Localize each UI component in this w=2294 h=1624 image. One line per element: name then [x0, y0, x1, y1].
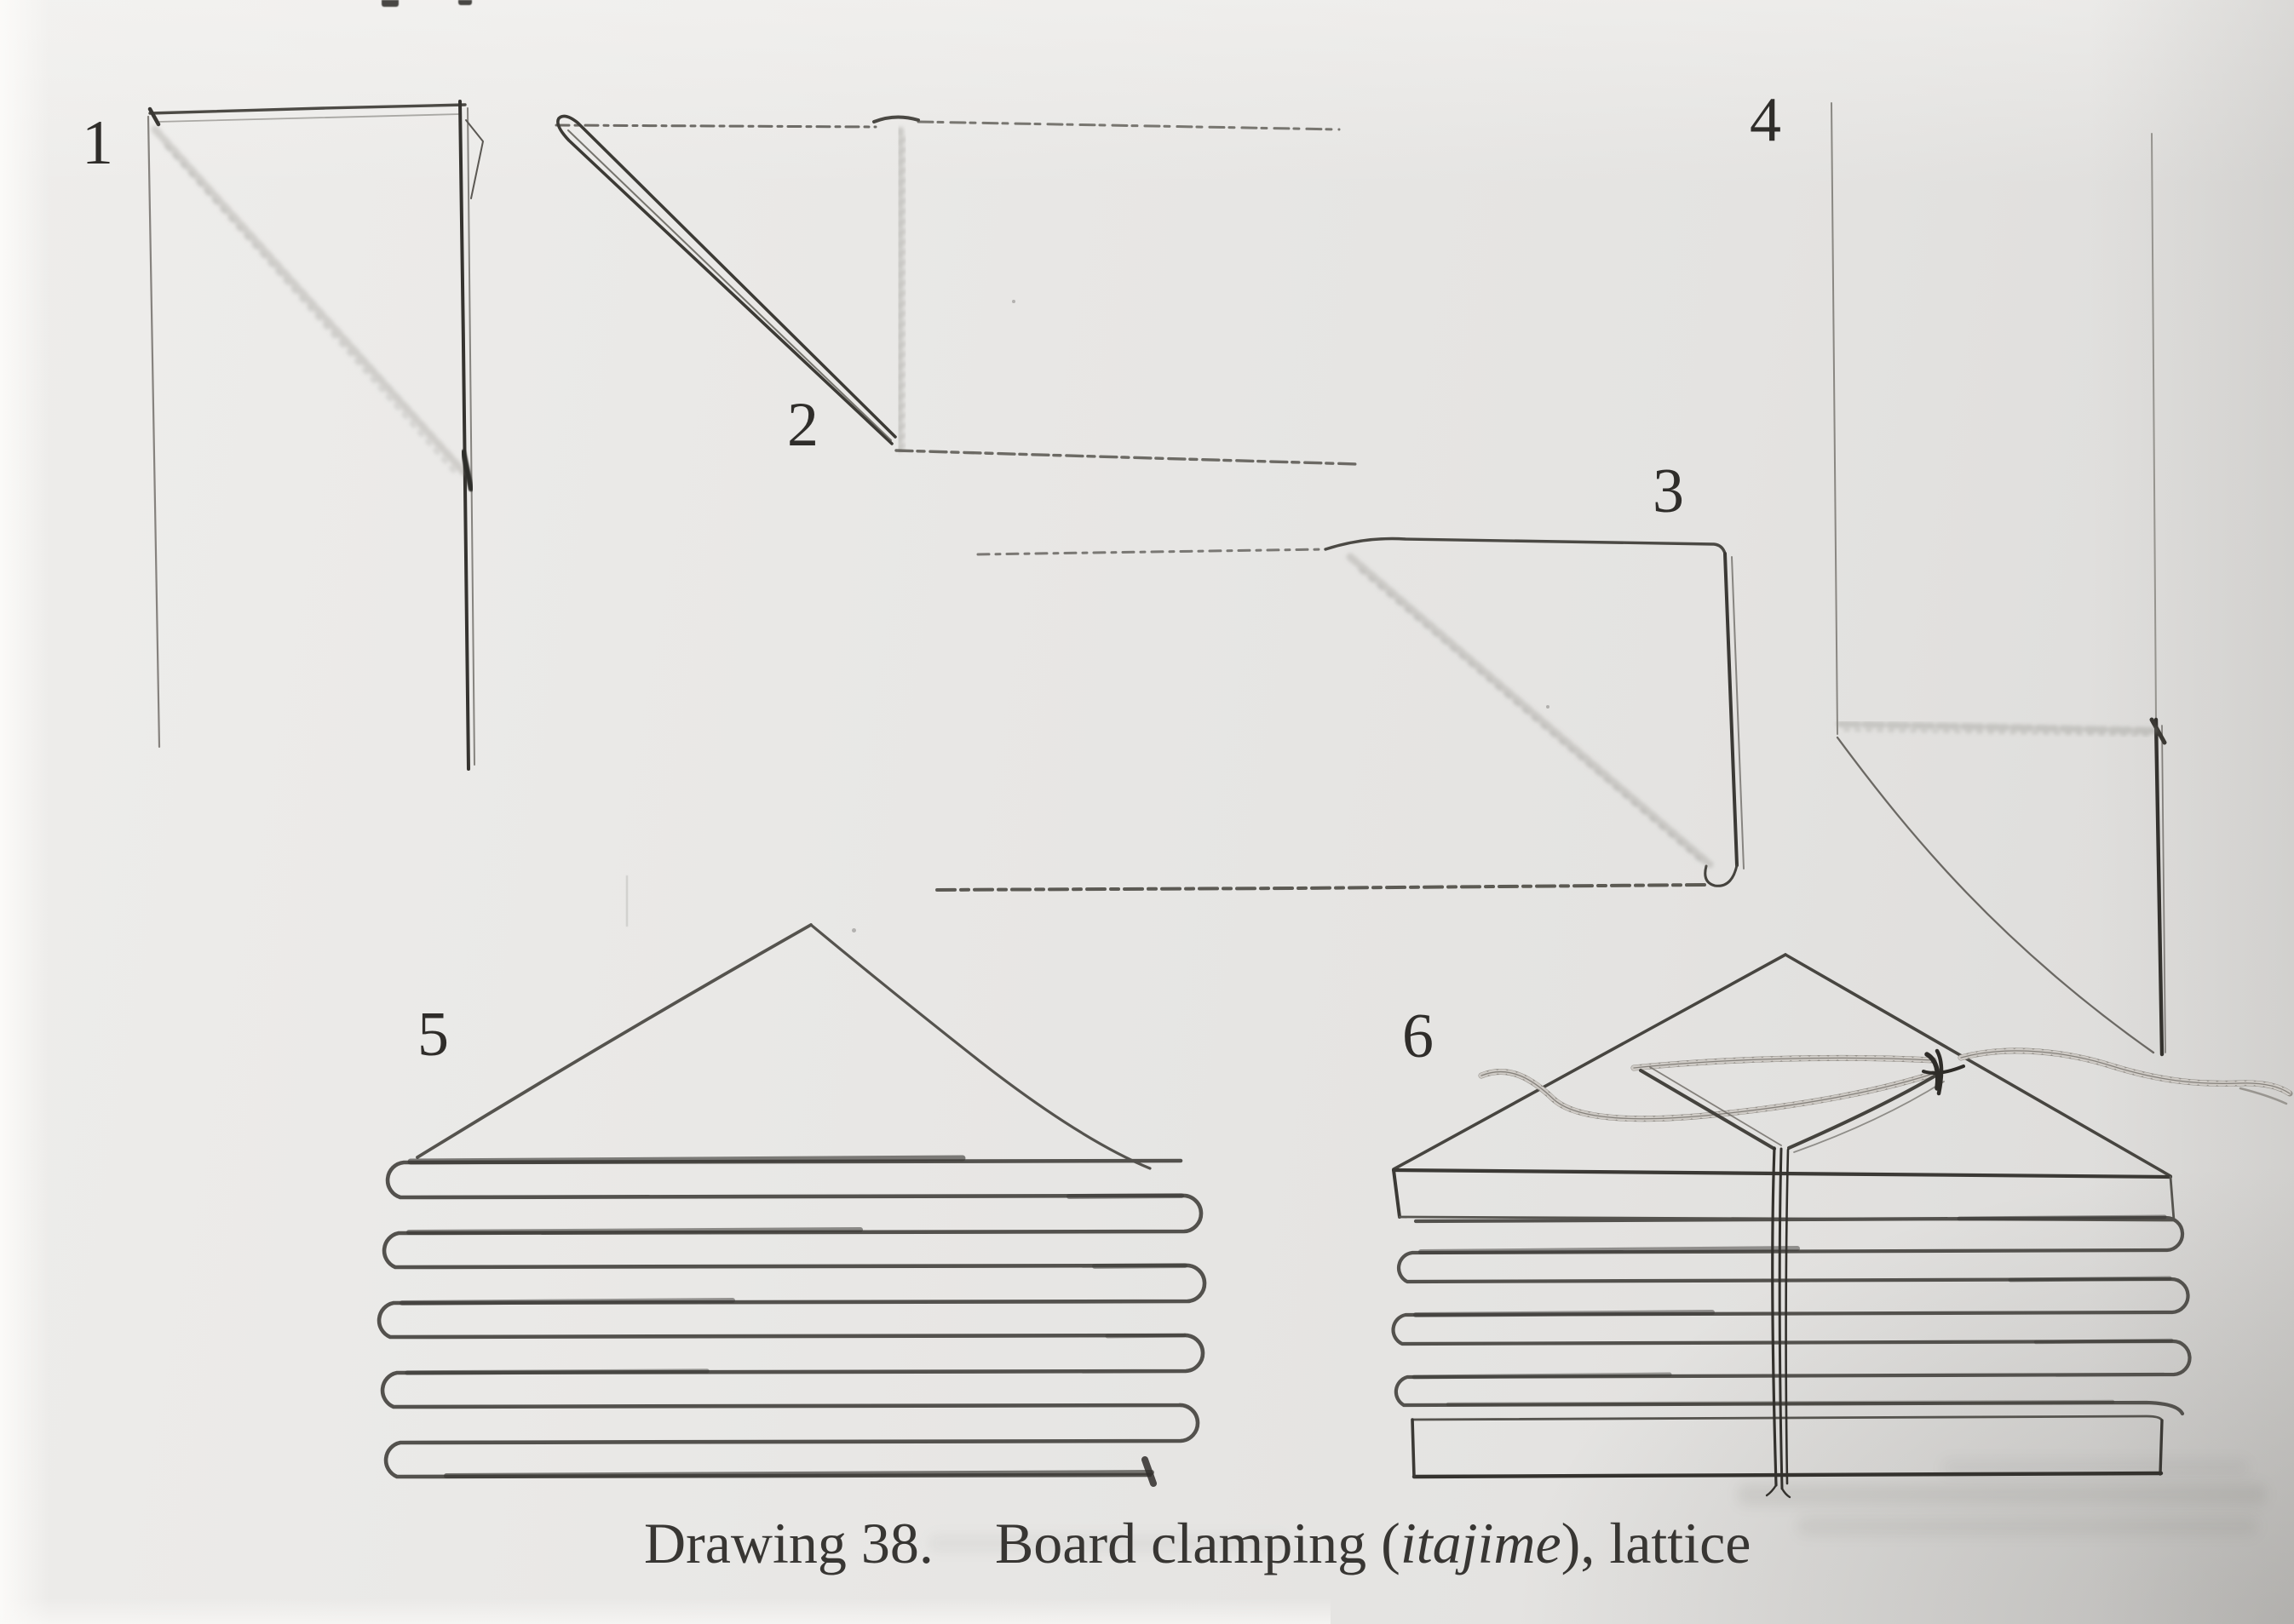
figure-2-label: 2: [787, 393, 819, 456]
figure-3-sketch-horizontal-strip: [932, 539, 1744, 891]
figure-5-sketch-pleated-stack: [379, 925, 1204, 1483]
cord-knot: [1923, 1051, 1963, 1093]
top-clamp-board: [1394, 1170, 2174, 1220]
figure-2-sketch-diagonal-fold: [556, 116, 1358, 464]
scanned-book-page: 1 2 3 4 5 6 Drawing 38. Board clamping (…: [0, 0, 2294, 1624]
itajime-folding-diagram: [0, 0, 2294, 1624]
caption-text: Board clamping (itajime), lattice: [995, 1514, 1751, 1572]
accordion-folds-serpentine: [379, 1161, 1204, 1477]
fold-shading-strokes: [402, 1158, 1185, 1476]
caption-body-start: Board clamping (: [995, 1511, 1400, 1575]
figure-4-label: 4: [1750, 89, 1781, 152]
pyramid-right-slope: [811, 925, 1150, 1168]
bottom-corner-mark: [1145, 1460, 1153, 1483]
cord-vertical-tie: [1767, 1148, 1790, 1497]
figure-3-label: 3: [1653, 460, 1684, 523]
hairpin-fold-edge: [558, 116, 895, 444]
caption-italic-term: itajime: [1400, 1511, 1561, 1575]
cord-upper-band: [1634, 1058, 1934, 1068]
figure-6-sketch-tied-stack: [1394, 955, 2290, 1497]
pyramid-left-slope: [417, 925, 811, 1157]
figure-5-label: 5: [417, 1003, 449, 1066]
cord-v-strands: [1641, 1067, 1944, 1152]
figure-1-label: 1: [82, 112, 113, 175]
figure-6-label: 6: [1402, 1005, 1434, 1068]
diagonal-fold-hatch: [155, 129, 463, 474]
diagonal-fold-edge: [1837, 737, 2153, 1053]
horizontal-fold-hatch: [1840, 724, 2158, 735]
cord-right-tail: [1961, 1051, 2290, 1104]
figure-caption: Drawing 38. Board clamping (itajime), la…: [644, 1514, 1751, 1572]
bottom-corner-fold-wave: [1705, 865, 1737, 886]
figure-1-sketch-folded-strip: [148, 101, 483, 769]
caption-body-end: ), lattice: [1561, 1511, 1751, 1575]
binding-cord: [1481, 1051, 2290, 1497]
vertical-fold-hatch: [900, 130, 905, 449]
diagonal-fold-hatch: [1350, 557, 1710, 864]
figure-4-sketch-refolded-strip: [1831, 103, 2165, 1054]
caption-number: Drawing 38.: [644, 1514, 934, 1572]
